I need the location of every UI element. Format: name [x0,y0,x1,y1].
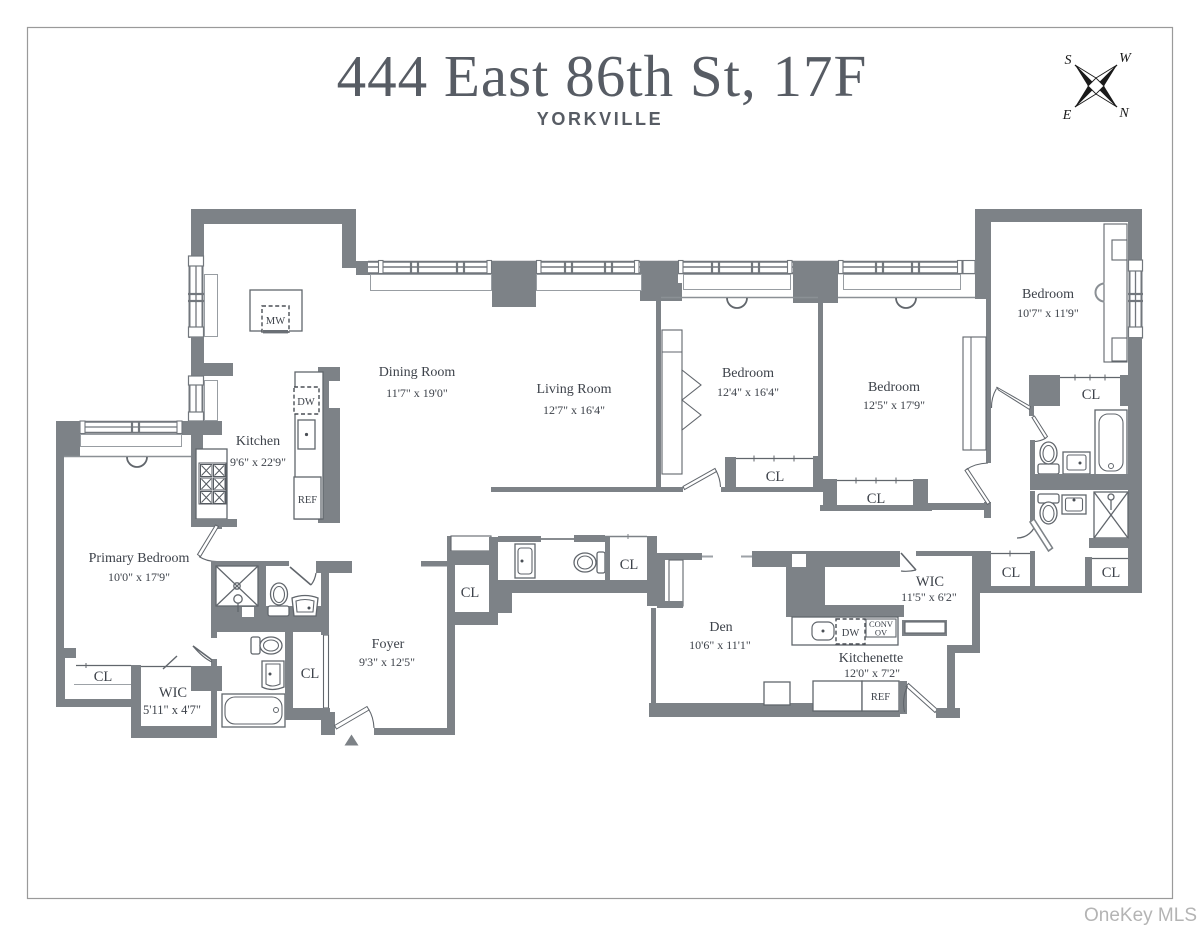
svg-text:12'5" x 17'9": 12'5" x 17'9" [863,398,925,412]
svg-text:CL: CL [766,469,785,485]
svg-text:12'4" x 16'4": 12'4" x 16'4" [717,385,779,399]
svg-text:WIC: WIC [916,574,944,590]
svg-text:CL: CL [301,666,320,682]
svg-text:Bedroom: Bedroom [722,366,774,381]
svg-text:10'6" x 11'1": 10'6" x 11'1" [689,638,751,652]
svg-text:Bedroom: Bedroom [868,380,920,395]
svg-text:11'7" x 19'0": 11'7" x 19'0" [386,386,448,400]
svg-text:OneKey MLS: OneKey MLS [1084,905,1197,926]
svg-text:S: S [1065,53,1072,68]
svg-text:Primary Bedroom: Primary Bedroom [89,551,190,566]
svg-text:Kitchen: Kitchen [236,434,280,449]
svg-text:5'11" x 4'7": 5'11" x 4'7" [143,703,201,717]
svg-text:Dining Room: Dining Room [379,365,456,380]
svg-text:CL: CL [94,669,113,685]
svg-text:Den: Den [709,620,732,635]
svg-text:CL: CL [461,585,480,601]
svg-text:9'6" x 22'9": 9'6" x 22'9" [230,455,286,469]
svg-text:CL: CL [867,491,886,507]
svg-text:CL: CL [1082,387,1101,403]
svg-text:9'3" x 12'5": 9'3" x 12'5" [359,655,415,669]
svg-text:10'7" x 11'9": 10'7" x 11'9" [1017,306,1079,320]
svg-text:CL: CL [1002,565,1021,581]
svg-text:WIC: WIC [159,685,187,701]
svg-text:12'0" x 7'2": 12'0" x 7'2" [844,666,900,680]
svg-text:MW: MW [266,316,285,327]
svg-text:YORKVILLE: YORKVILLE [537,109,663,129]
svg-text:N: N [1118,106,1129,121]
svg-text:DW: DW [297,397,315,408]
svg-text:CL: CL [1102,565,1121,581]
svg-text:REF: REF [871,692,890,703]
svg-text:10'0" x 17'9": 10'0" x 17'9" [108,570,170,584]
svg-text:Foyer: Foyer [372,637,405,652]
svg-text:11'5" x 6'2": 11'5" x 6'2" [901,590,957,604]
svg-text:W: W [1119,51,1132,66]
svg-text:Bedroom: Bedroom [1022,287,1074,302]
svg-text:E: E [1062,108,1072,123]
svg-text:Living Room: Living Room [536,382,611,397]
svg-text:REF: REF [298,495,317,506]
svg-text:Kitchenette: Kitchenette [839,651,904,666]
svg-text:DW: DW [842,628,860,639]
svg-text:CL: CL [620,557,639,573]
svg-text:12'7" x 16'4": 12'7" x 16'4" [543,403,605,417]
svg-text:444 East 86th St, 17F: 444 East 86th St, 17F [337,43,868,109]
svg-text:OV: OV [875,628,888,638]
